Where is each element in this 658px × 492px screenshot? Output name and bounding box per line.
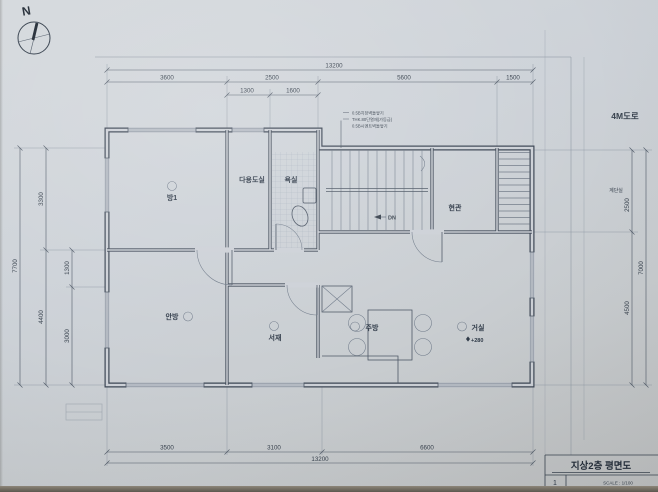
door-entry bbox=[410, 229, 444, 262]
photo-edge-left bbox=[0, 0, 3, 492]
dim-bottom-seg1: 3500 bbox=[160, 445, 174, 452]
dim-top-seg3: 5600 bbox=[397, 75, 411, 82]
floor-plan-drawing: 13200 3600 2500 5600 1500 1300 1600 3500… bbox=[0, 0, 658, 492]
room-tag bbox=[168, 182, 177, 191]
dim-right-total: 7000 bbox=[638, 261, 645, 275]
compass: N bbox=[18, 3, 50, 54]
duct-shaft bbox=[322, 286, 352, 312]
dim-top-total: 13200 bbox=[325, 63, 343, 70]
site-boundary-lines bbox=[66, 30, 584, 455]
dining-table bbox=[368, 310, 412, 360]
dim-left-seg2: 4400 bbox=[38, 310, 45, 324]
dim-left-sub2: 3000 bbox=[64, 329, 71, 343]
dim-top-seg4: 1500 bbox=[506, 75, 520, 82]
master-label: 안방 bbox=[166, 312, 179, 321]
chair bbox=[349, 339, 366, 356]
stair-hall-label: 계단실 bbox=[609, 187, 623, 194]
door-study bbox=[285, 282, 319, 315]
dim-left-total: 7700 bbox=[12, 259, 19, 273]
floor-plan-photo: 13200 3600 2500 5600 1500 1300 1600 3500… bbox=[0, 0, 658, 492]
living-level: +280 bbox=[471, 338, 483, 344]
wall-note-line1: 0.5B치장벽돌쌓기 bbox=[352, 110, 384, 117]
dimension-extension-lines bbox=[14, 64, 652, 466]
living-label: 거실 bbox=[472, 323, 485, 332]
kitchen-fixtures bbox=[322, 310, 432, 383]
wall-note: 0.5B치장벽돌쌓기 THK.80단열재(가등급) 0.5B시멘트벽돌쌓기 bbox=[341, 110, 393, 149]
dim-left-seg1: 3300 bbox=[38, 192, 45, 206]
stair-interior: DN bbox=[326, 150, 428, 230]
utility-label: 다용도실 bbox=[239, 175, 265, 184]
room-tag bbox=[270, 322, 279, 331]
dim-top-sub1: 1300 bbox=[240, 88, 254, 95]
drawing-title: 지상2층 평면도 bbox=[571, 460, 632, 472]
wall-note-line2: THK.80단열재(가등급) bbox=[352, 116, 393, 123]
dimension-lines bbox=[18, 68, 649, 466]
stair-down-label: DN bbox=[388, 216, 396, 222]
bathroom-fixtures bbox=[272, 152, 316, 248]
room-tag bbox=[351, 322, 360, 331]
room-tag bbox=[184, 312, 193, 321]
dim-bottom-seg3: 6600 bbox=[420, 445, 434, 452]
stair-down-arrow bbox=[374, 215, 381, 220]
photo-edge-bottom bbox=[0, 486, 658, 492]
stair-exterior-hatch bbox=[499, 152, 530, 230]
road-label: 4M도로 bbox=[611, 111, 639, 121]
interior-walls bbox=[107, 130, 532, 385]
dim-top-sub2: 1600 bbox=[286, 88, 300, 95]
wall-note-line3: 0.5B시멘트벽돌쌓기 bbox=[352, 123, 388, 130]
bathroom-tile-floor bbox=[272, 152, 316, 248]
entry-label: 현관 bbox=[449, 203, 462, 212]
bath-label: 욕실 bbox=[285, 175, 298, 184]
dim-right-seg1: 2500 bbox=[624, 198, 631, 212]
chair bbox=[415, 339, 432, 356]
room-labels: 방1 다용도실 욕실 현관 안방 서재 주방 거실 +280 bbox=[166, 175, 485, 344]
dim-top-seg2: 2500 bbox=[265, 75, 279, 82]
room1-label: 방1 bbox=[167, 193, 177, 202]
drawing-scale: SCALE : 1/100 bbox=[603, 481, 633, 486]
dim-right-seg2: 4500 bbox=[624, 301, 631, 315]
dim-top-seg1: 3600 bbox=[160, 75, 174, 82]
level-marker-icon bbox=[466, 336, 470, 341]
kitchen-label: 주방 bbox=[366, 323, 379, 332]
dim-bottom-total: 13200 bbox=[311, 456, 329, 463]
study-label: 서재 bbox=[269, 333, 282, 342]
room-tag bbox=[458, 322, 467, 331]
dim-bottom-seg2: 3100 bbox=[267, 445, 281, 452]
compass-north-label: N bbox=[21, 3, 32, 18]
dim-left-sub1: 1300 bbox=[64, 261, 71, 275]
chair bbox=[415, 315, 432, 332]
